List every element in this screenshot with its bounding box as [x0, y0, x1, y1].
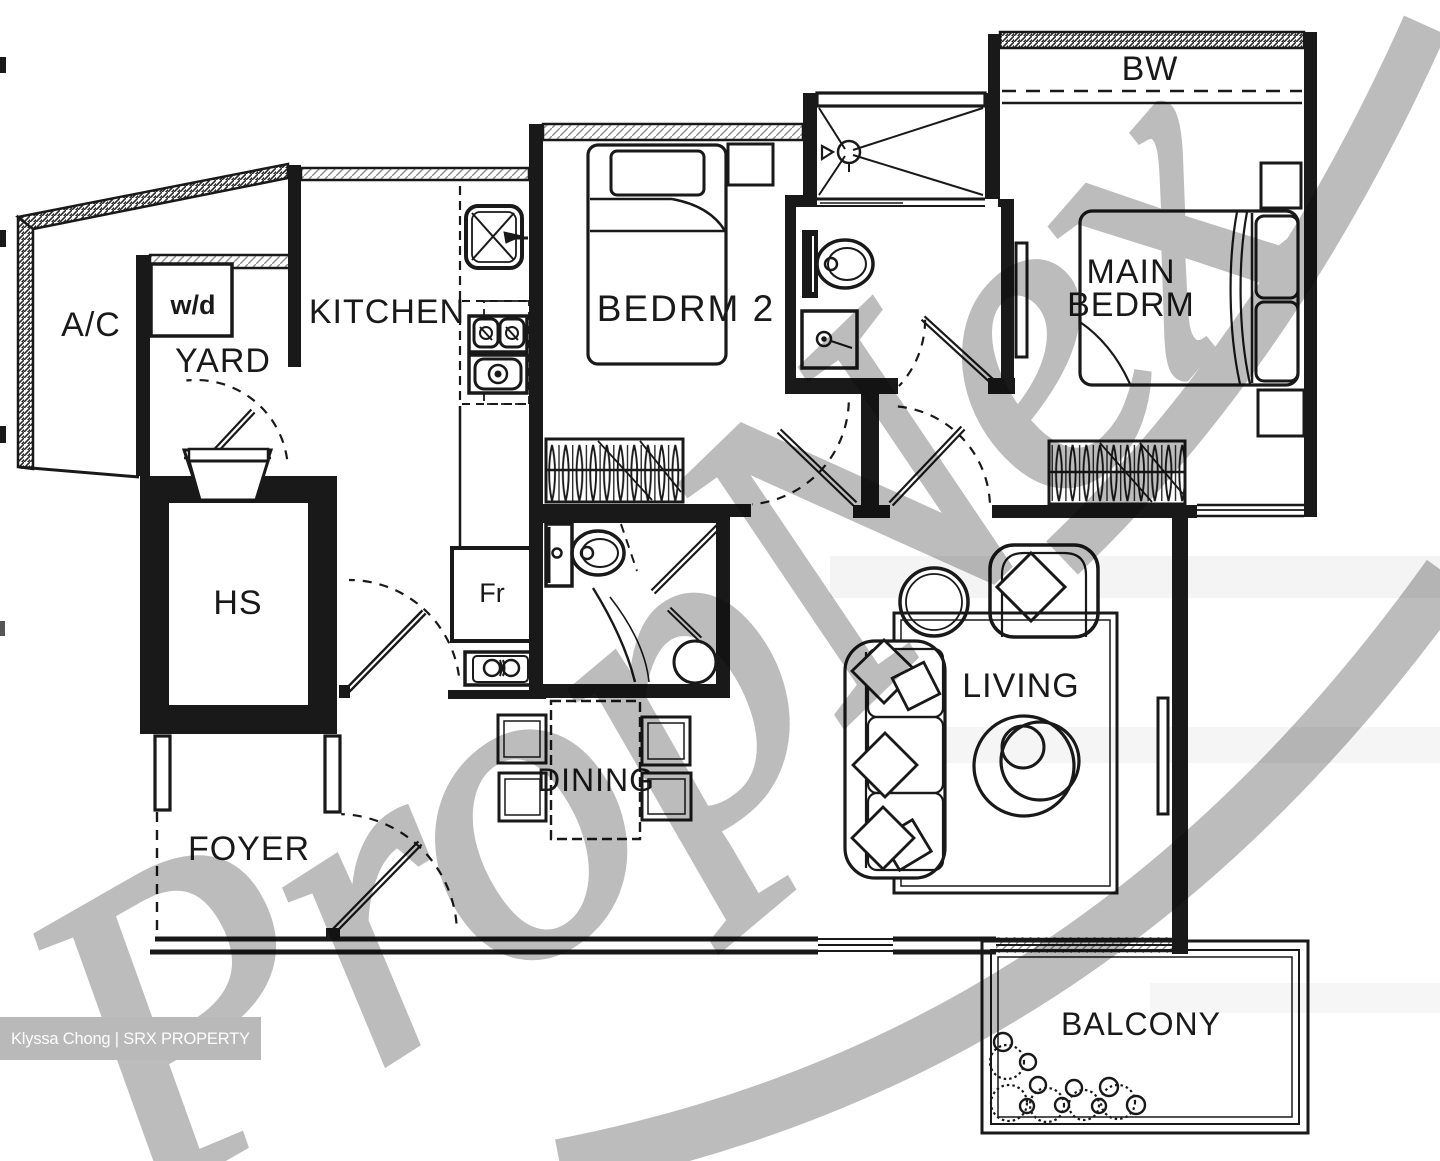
- svg-text:w/d: w/d: [170, 290, 216, 320]
- svg-text:BALCONY: BALCONY: [1061, 1006, 1221, 1042]
- svg-text:HS: HS: [213, 584, 262, 622]
- svg-text:Klyssa Chong | SRX PROPERTY: Klyssa Chong | SRX PROPERTY: [11, 1030, 250, 1048]
- svg-text:KITCHEN: KITCHEN: [309, 293, 465, 331]
- svg-text:A/C: A/C: [61, 306, 121, 344]
- svg-text:YARD: YARD: [175, 342, 271, 380]
